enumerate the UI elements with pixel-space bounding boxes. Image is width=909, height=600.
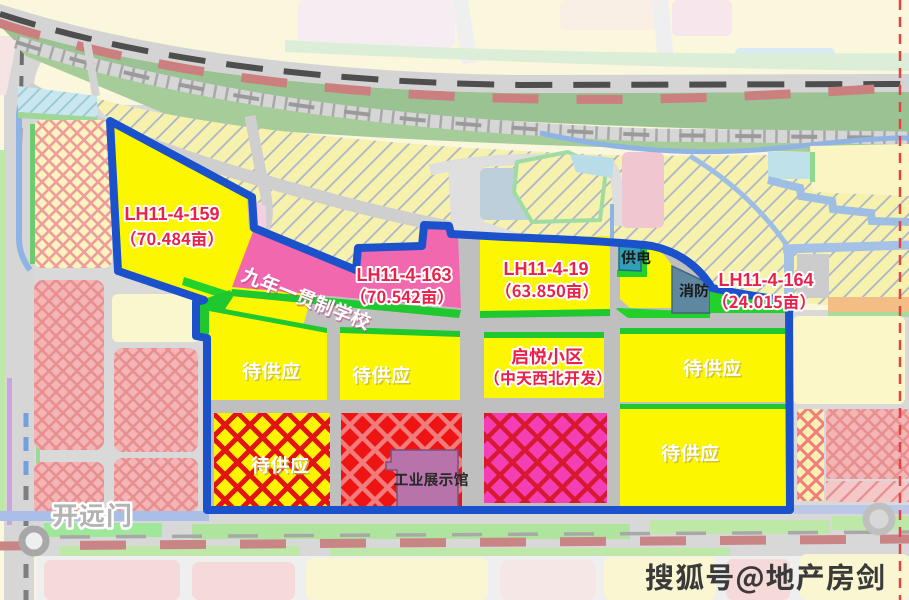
svg-text:LH11-4-19: LH11-4-19 xyxy=(503,259,588,279)
svg-text:LH11-4-164: LH11-4-164 xyxy=(718,270,813,290)
svg-text:LH11-4-163: LH11-4-163 xyxy=(356,265,451,285)
svg-text:LH11-4-159: LH11-4-159 xyxy=(124,204,219,224)
